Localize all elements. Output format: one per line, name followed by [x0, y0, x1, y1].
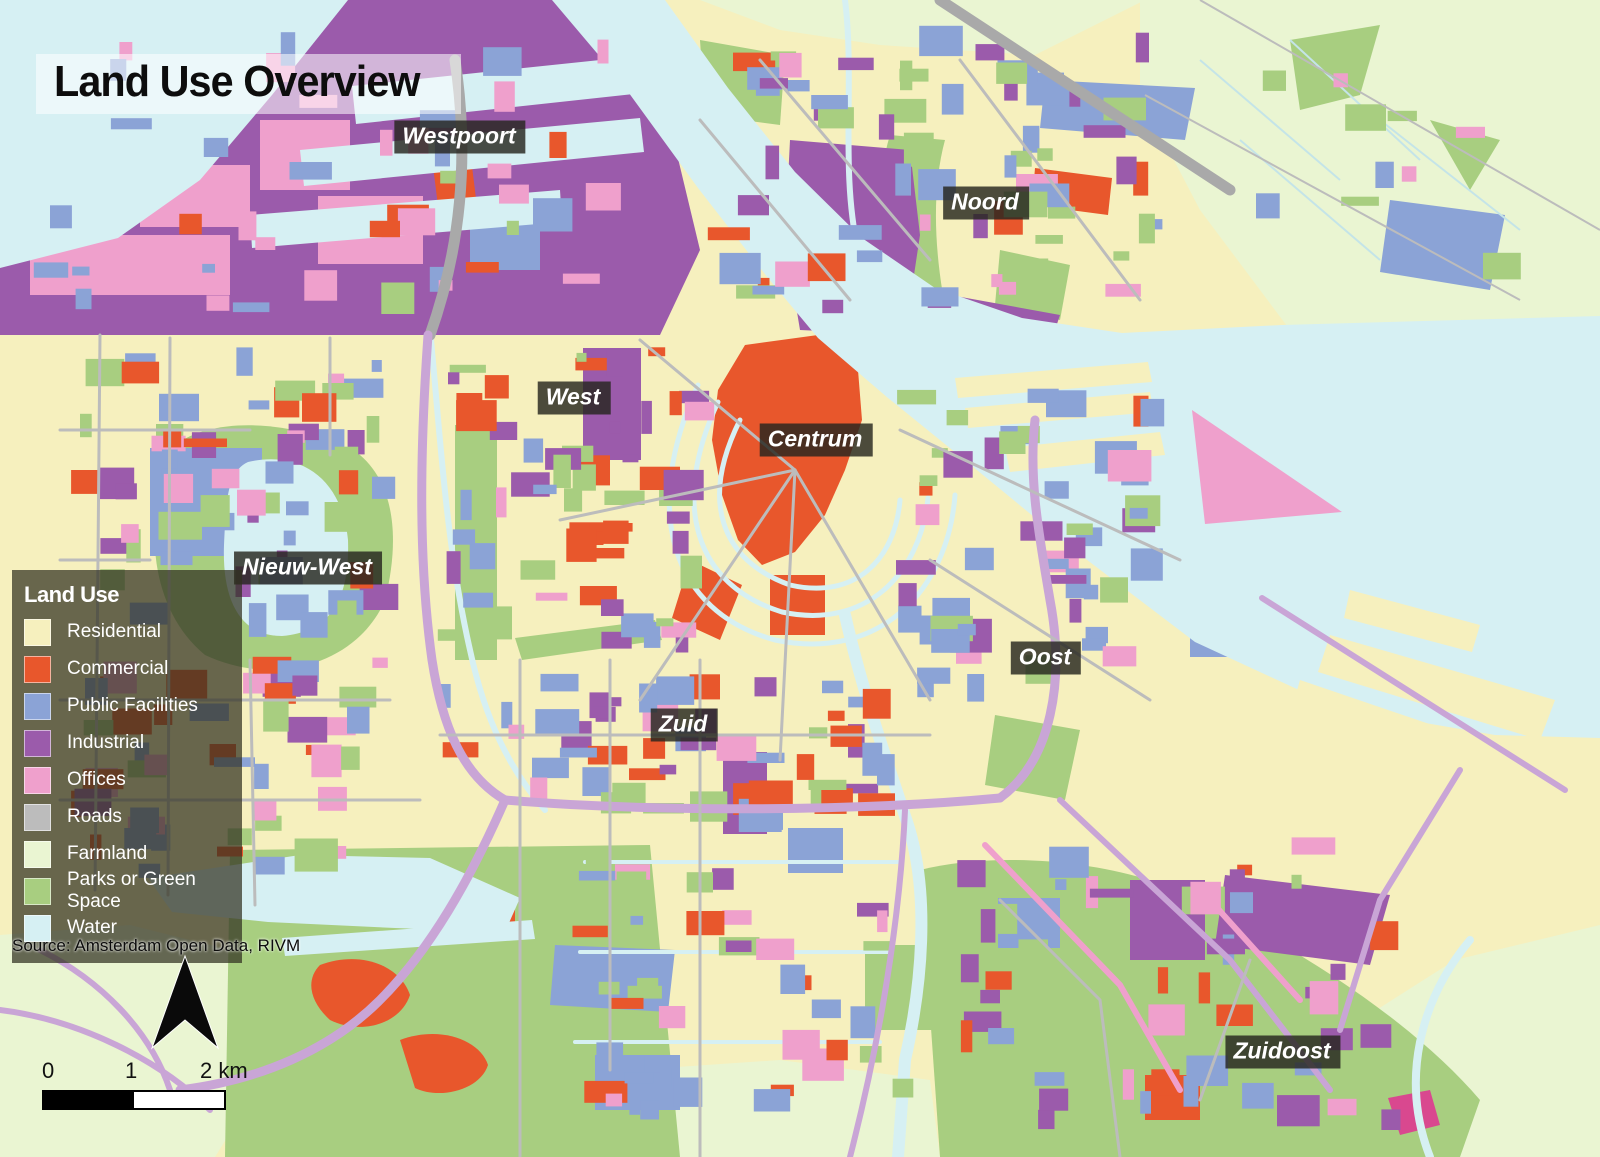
north-arrow-icon: [148, 952, 222, 1052]
legend-item-industrial: Industrial: [24, 729, 242, 757]
legend-item-residential: Residential: [24, 618, 242, 646]
legend-title: Land Use: [24, 582, 242, 608]
legend-item-roads: Roads: [24, 803, 242, 831]
district-label-zuid: Zuid: [651, 709, 718, 742]
legend-label: Farmland: [67, 843, 147, 865]
scale-end-label: 2 km: [200, 1058, 248, 1084]
scale-mid-label: 1: [125, 1058, 137, 1084]
land-use-map-page: Land Use Overview Westpoort Noord West C…: [0, 0, 1600, 1157]
legend-panel: Land Use Residential Commercial Public F…: [12, 570, 242, 963]
legend-label: Public Facilities: [67, 695, 198, 717]
district-label-oost: Oost: [1011, 642, 1081, 675]
district-label-centrum: Centrum: [760, 424, 873, 457]
district-label-noord: Noord: [943, 187, 1029, 220]
commercial-swatch: [24, 656, 51, 683]
legend-item-offices: Offices: [24, 766, 242, 794]
residential-swatch: [24, 619, 51, 646]
legend-item-commercial: Commercial: [24, 655, 242, 683]
legend-label: Residential: [67, 621, 161, 643]
legend-label: Offices: [67, 769, 126, 791]
offices-swatch: [24, 767, 51, 794]
map-title-box: Land Use Overview: [36, 54, 461, 114]
scale-bar-labels: 0 1 2 km: [42, 1058, 238, 1084]
scale-bar-empty-half: [134, 1092, 224, 1108]
district-label-westpoort: Westpoort: [394, 121, 525, 154]
roads-swatch: [24, 804, 51, 831]
legend-label: Parks or Green Space: [67, 869, 242, 913]
scale-bar: 0 1 2 km: [42, 1058, 238, 1110]
legend-item-public-facilities: Public Facilities: [24, 692, 242, 720]
district-label-zuidoost: Zuidoost: [1225, 1036, 1340, 1069]
scale-bar-filled-half: [44, 1092, 134, 1108]
district-label-nieuw-west: Nieuw-West: [234, 552, 382, 585]
public-facilities-swatch: [24, 693, 51, 720]
legend-label: Industrial: [67, 732, 144, 754]
scale-bar-graphic: [42, 1090, 226, 1110]
page-title: Land Use Overview: [54, 60, 420, 104]
legend-label: Roads: [67, 806, 122, 828]
farmland-swatch: [24, 841, 51, 868]
district-label-west: West: [538, 382, 611, 415]
parks-swatch: [24, 878, 51, 905]
scale-start-label: 0: [42, 1058, 54, 1084]
industrial-swatch: [24, 730, 51, 757]
legend-item-parks: Parks or Green Space: [24, 877, 242, 905]
legend-label: Commercial: [67, 658, 168, 680]
legend-item-farmland: Farmland: [24, 840, 242, 868]
